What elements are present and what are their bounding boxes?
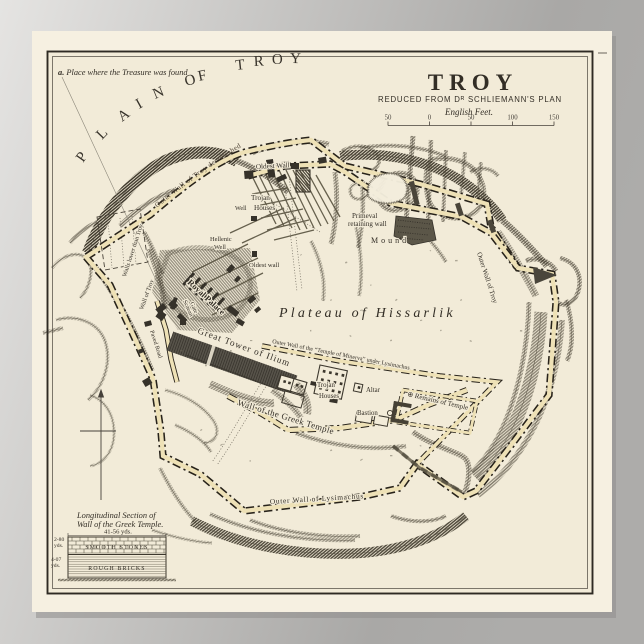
svg-text:Y: Y [290,51,301,67]
svg-text:Hellenic: Hellenic [210,236,232,243]
svg-text:O: O [272,52,283,68]
svg-text:Longitudinal Section of: Longitudinal Section of [76,511,157,520]
svg-text:0: 0 [428,115,432,122]
svg-text:Bastion: Bastion [357,410,378,417]
svg-text:yds.: yds. [51,563,61,569]
svg-text:Well: Well [235,205,247,212]
svg-text:Trojan: Trojan [251,194,270,202]
svg-text:a. Place where the Treasure wa: a. Place where the Treasure was found [58,68,188,77]
svg-text:Altar: Altar [366,387,381,394]
svg-text:TROY: TROY [428,70,518,95]
svg-text:50: 50 [468,115,475,122]
svg-text:Trojan: Trojan [317,382,335,389]
svg-text:Plateau of Hissarlik: Plateau of Hissarlik [278,306,456,321]
svg-text:100: 100 [507,115,518,122]
svg-text:yds.: yds. [54,543,64,549]
svg-text:Primeval: Primeval [352,212,377,220]
svg-text:retaining wall: retaining wall [348,220,387,228]
svg-text:SMOOTH STONES: SMOOTH STONES [85,545,148,551]
svg-text:Well: Well [214,244,226,251]
svg-text:Houses: Houses [319,393,339,400]
svg-text:T: T [235,57,246,74]
svg-text:150: 150 [549,115,560,122]
svg-text:41-56 yds.: 41-56 yds. [104,529,132,536]
svg-text:Oldest wall: Oldest wall [249,262,279,269]
svg-text:Houses: Houses [254,204,275,212]
svg-text:50: 50 [385,115,392,122]
svg-text:Mound: Mound [371,236,409,245]
svg-text:R: R [253,53,264,70]
svg-text:REDUCED FROM Dᴿ SCHLIEMANN'S P: REDUCED FROM Dᴿ SCHLIEMANN'S PLAN [378,95,562,104]
svg-text:ROUGH BRICKS: ROUGH BRICKS [88,566,145,572]
